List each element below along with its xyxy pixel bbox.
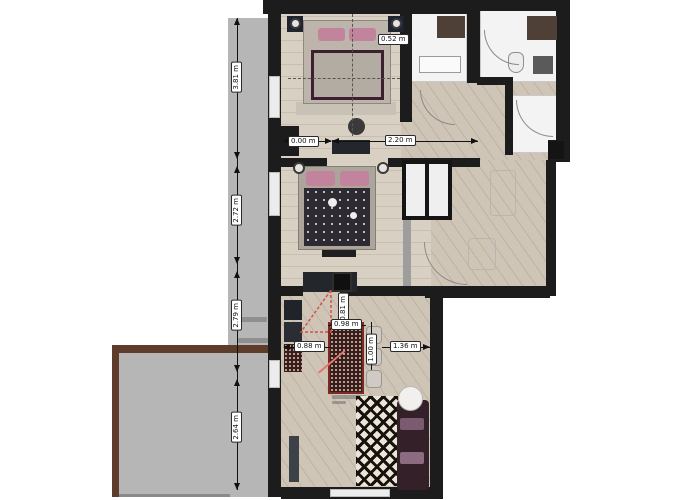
door-gap-bottom: [330, 489, 390, 497]
side-table: [398, 386, 423, 411]
pillow: [349, 28, 376, 41]
terrace-wall-left: [112, 345, 119, 497]
tv-panel: [289, 436, 299, 482]
dimension-label: 3.81 m: [231, 62, 242, 93]
dimension-label-hall-long: 2.20 m: [385, 135, 416, 146]
blanket-2: [304, 188, 370, 246]
dimension-label: 1.00 m: [366, 334, 377, 365]
sofa: [397, 400, 429, 490]
dimension-label: 1.36 m: [390, 341, 421, 352]
shower-tray: [533, 56, 553, 74]
entry-chair-2: [468, 238, 496, 270]
window-1: [269, 76, 280, 118]
wardrobe-door: [429, 164, 448, 216]
dimension-arrow: [325, 138, 332, 144]
lamp-icon: [391, 18, 402, 29]
blanket-accent: [328, 198, 337, 207]
terrace-deck: [119, 353, 230, 497]
pillow: [318, 28, 345, 41]
dimension-label-hall-short: 0.00 m: [288, 136, 319, 147]
dimension-arrow: [234, 257, 240, 264]
vanity-cabinet-1: [437, 16, 465, 38]
dimension-arrow: [234, 166, 240, 173]
dimension-label: 0.88 m: [294, 341, 325, 352]
dimension-arrow: [471, 138, 478, 144]
wall-entry-bottom: [425, 286, 550, 298]
living-rug: [356, 396, 398, 486]
dimension-arrow: [234, 483, 240, 490]
window-3: [269, 360, 280, 388]
wall-right-upper: [556, 0, 570, 162]
terrace-wall-top: [112, 345, 268, 353]
lamp-icon: [293, 162, 305, 174]
dimension-arrow: [234, 271, 240, 278]
entry-chair-1: [490, 170, 516, 216]
vanity-cabinet-2: [527, 16, 557, 40]
wall-kitchen-right: [430, 296, 443, 497]
illegible-text: [238, 338, 268, 343]
dimension-arrow: [423, 344, 430, 350]
cooktop-icon: [332, 272, 352, 292]
window-2: [269, 172, 280, 216]
wall-shower-left: [505, 85, 513, 155]
centerline-horizontal: [288, 78, 400, 79]
partition-bedroom2-entry: [403, 220, 411, 286]
illegible-text: [241, 317, 267, 322]
dimension-label-closet: 0.52 m: [378, 34, 409, 45]
blanket-1: [311, 50, 384, 100]
dimension-label: 2.79 m: [231, 300, 242, 331]
dimension-arrow: [234, 152, 240, 159]
wall-top-right: [468, 0, 570, 11]
bathtub: [419, 56, 461, 73]
lamp-icon: [290, 18, 301, 29]
floor-plan-canvas: 3.81 m 2.72 m 2.79 m 2.64 m 0.52 m: [0, 0, 700, 500]
wardrobe-door: [406, 164, 425, 216]
wall-entry-right: [546, 160, 556, 296]
sofa-pillow: [400, 452, 424, 464]
red-triangle-marker: [299, 288, 333, 334]
pillow: [340, 171, 369, 186]
centerline-vertical: [352, 14, 353, 136]
dimension-arrow: [283, 344, 290, 350]
dimension-arrow: [332, 138, 339, 144]
wall-under-bathroom2: [477, 77, 513, 85]
tv-console: [322, 250, 356, 257]
blanket-accent: [350, 212, 357, 219]
stool: [366, 370, 382, 388]
hall-plant-icon: [348, 118, 365, 135]
illegible-text: [332, 401, 346, 404]
dimension-arrow: [234, 365, 240, 372]
dimension-arrow: [234, 18, 240, 25]
pillow: [306, 171, 335, 186]
dimension-arrow: [234, 379, 240, 386]
wall-top: [263, 0, 470, 14]
sofa-pillow: [400, 418, 424, 430]
shower-corner-unit: [548, 141, 564, 159]
dimension-label: 0.98 m: [331, 319, 362, 330]
dimension-label: 2.72 m: [231, 195, 242, 226]
lamp-icon: [377, 162, 389, 174]
wall-bathroom-divider: [467, 0, 480, 83]
dimension-label: 2.64 m: [231, 412, 242, 443]
